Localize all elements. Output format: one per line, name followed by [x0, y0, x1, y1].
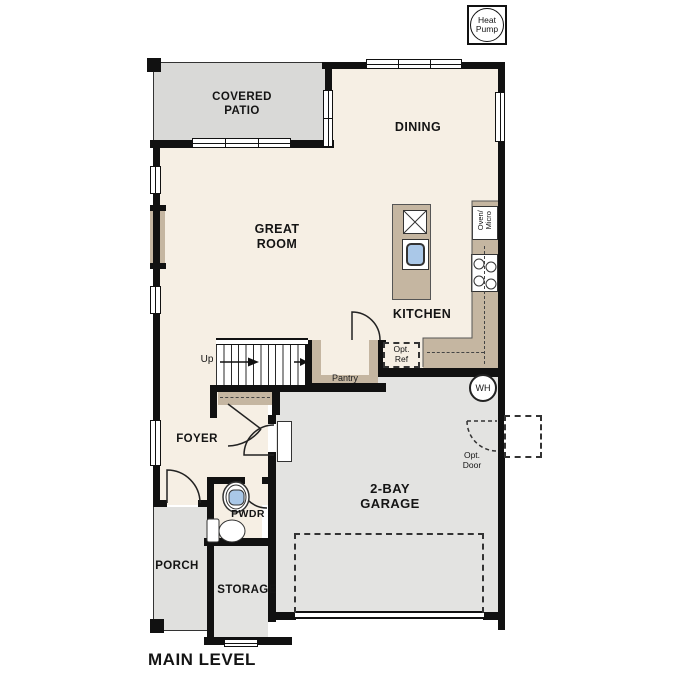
opt-door-swing: [467, 421, 497, 451]
front-door-swing: [167, 470, 200, 503]
heat-pump-circle: Heat Pump: [470, 8, 504, 42]
room-label-covered-patio: COVERED PATIO: [182, 91, 302, 118]
room-label-dining: DINING: [378, 120, 458, 135]
water-heater-label: WH: [476, 383, 491, 394]
room-label-great-room: GREAT ROOM: [232, 222, 322, 252]
page-title: MAIN LEVEL: [148, 650, 378, 670]
toilet: [207, 519, 245, 542]
stair-arrow-head-2: [300, 358, 308, 366]
stair-arrow-head: [248, 358, 259, 367]
floor-plan: Opt. Ref Up Oven/ Micro: [0, 0, 687, 687]
room-label-porch: PORCH: [153, 560, 201, 574]
plan-line-overlay: [0, 0, 687, 687]
room-label-pwdr: PWDR: [226, 508, 270, 520]
burner: [474, 259, 484, 269]
dishwasher-x: [404, 211, 426, 233]
heat-pump: Heat Pump: [467, 5, 507, 45]
room-label-kitchen: KITCHEN: [380, 307, 464, 322]
burner: [486, 262, 496, 272]
kitchen-counter-outline: [423, 201, 498, 367]
opt-door-label: Opt. Door: [452, 450, 492, 470]
burner: [486, 279, 496, 289]
burner: [474, 276, 484, 286]
room-label-garage: 2-BAY GARAGE: [350, 481, 430, 512]
room-label-foyer: FOYER: [170, 433, 224, 447]
room-label-storage: STORAGE: [212, 584, 282, 598]
room-label-pantry: Pantry: [315, 373, 375, 384]
closet-door-leaf: [228, 404, 261, 429]
pantry-door-swing: [352, 312, 380, 340]
heat-pump-label: Heat Pump: [476, 16, 498, 34]
water-heater: WH: [469, 374, 497, 402]
